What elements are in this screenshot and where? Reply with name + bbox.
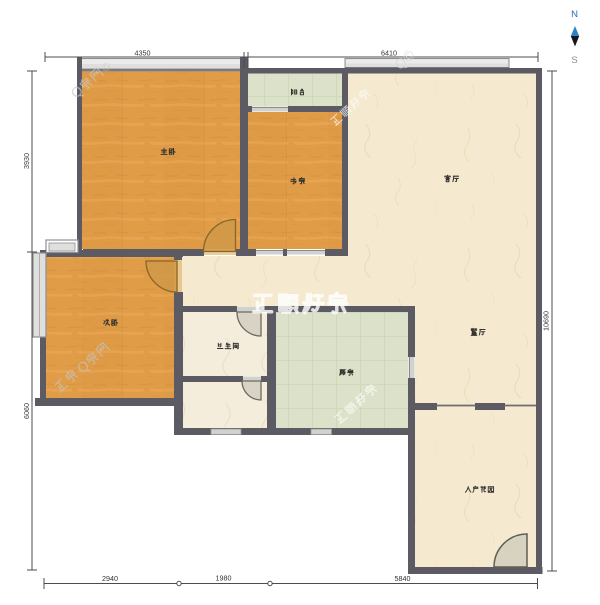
- svg-text:4350: 4350: [135, 49, 151, 58]
- svg-text:3930: 3930: [22, 153, 31, 169]
- svg-text:10690: 10690: [542, 311, 551, 331]
- svg-text:6410: 6410: [381, 49, 397, 58]
- svg-text:1980: 1980: [216, 574, 232, 583]
- svg-text:S: S: [571, 55, 577, 66]
- svg-text:6060: 6060: [22, 403, 31, 419]
- svg-text:N: N: [571, 9, 578, 20]
- svg-text:5840: 5840: [395, 574, 411, 583]
- svg-text:2940: 2940: [102, 574, 118, 583]
